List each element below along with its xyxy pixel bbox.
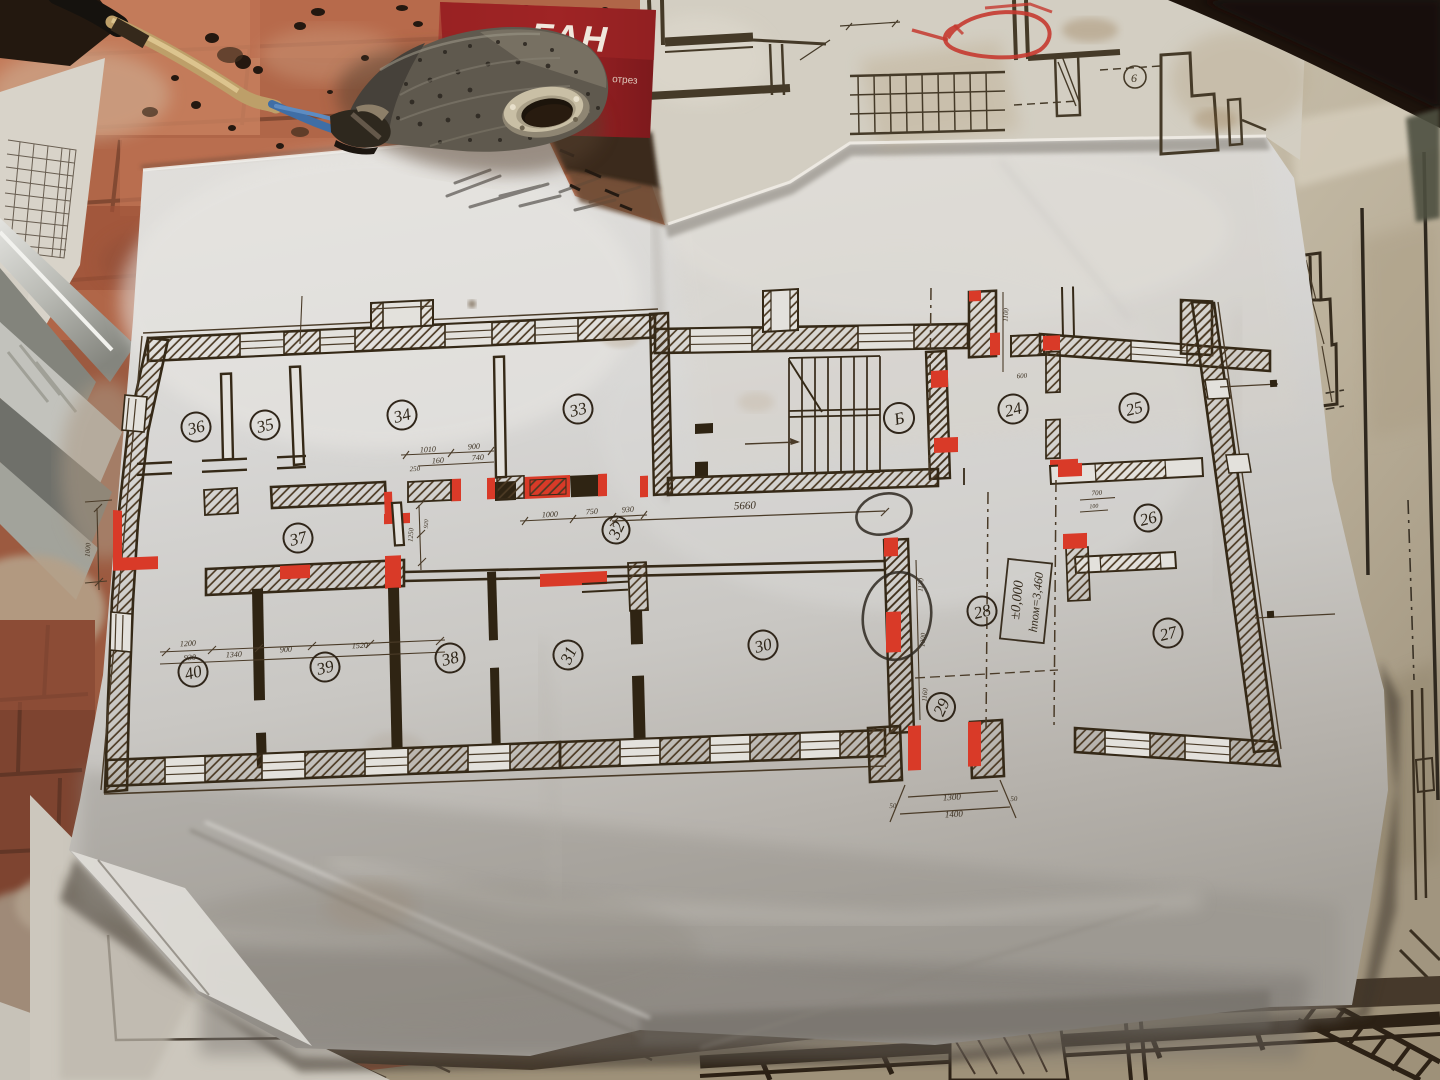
svg-text:5660: 5660 [734, 500, 757, 513]
svg-text:1000: 1000 [919, 632, 928, 647]
svg-text:700: 700 [1091, 489, 1103, 498]
svg-text:740: 740 [472, 453, 484, 463]
svg-text:600: 600 [1016, 372, 1027, 381]
svg-text:900: 900 [468, 442, 480, 452]
svg-text:1300: 1300 [943, 792, 962, 803]
svg-text:930: 930 [622, 505, 634, 515]
svg-text:6: 6 [1131, 71, 1137, 85]
svg-text:100: 100 [1089, 504, 1098, 511]
svg-text:1520: 1520 [352, 641, 368, 651]
svg-text:1200: 1200 [180, 639, 196, 649]
svg-text:1000: 1000 [84, 542, 93, 557]
svg-text:250: 250 [409, 465, 420, 474]
svg-text:160: 160 [432, 456, 444, 466]
svg-text:920: 920 [424, 519, 431, 528]
svg-text:1250: 1250 [407, 527, 416, 542]
svg-text:900: 900 [280, 645, 292, 655]
svg-text:отрез: отрез [612, 74, 639, 87]
svg-text:1000: 1000 [542, 510, 558, 520]
svg-text:1170: 1170 [917, 577, 926, 592]
svg-text:50: 50 [1010, 795, 1018, 803]
svg-text:50: 50 [889, 802, 897, 810]
svg-text:750: 750 [586, 507, 598, 517]
svg-text:1100: 1100 [1002, 307, 1011, 322]
svg-text:1010: 1010 [420, 445, 436, 455]
svg-text:1400: 1400 [945, 809, 964, 820]
svg-text:1340: 1340 [226, 650, 242, 660]
